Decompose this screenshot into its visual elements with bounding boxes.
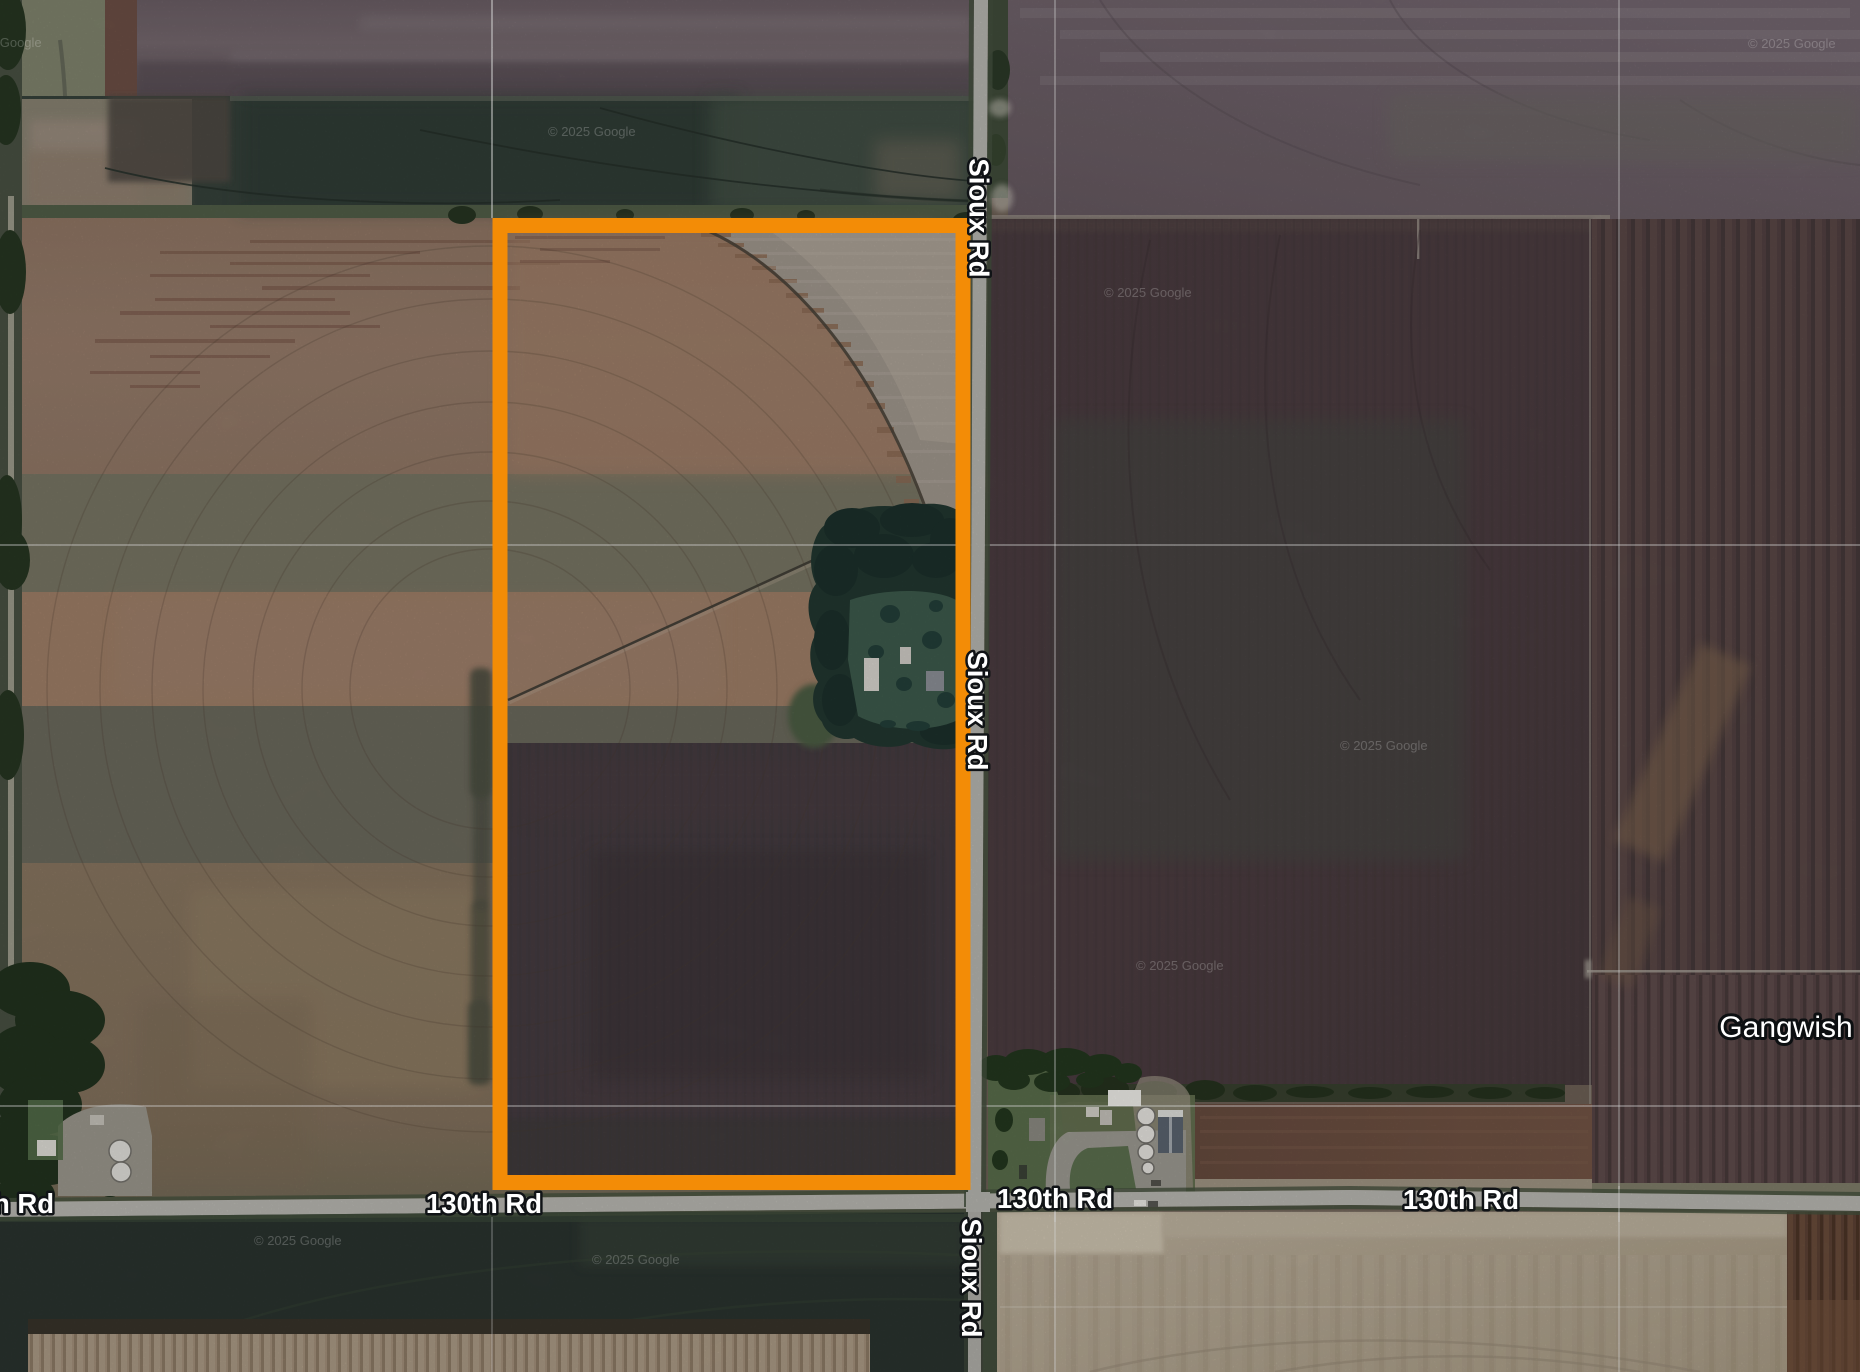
svg-text:Sioux Rd: Sioux Rd — [964, 158, 995, 277]
svg-text:© 2025 Google: © 2025 Google — [0, 35, 42, 50]
svg-text:Sioux Rd: Sioux Rd — [956, 1218, 987, 1337]
svg-text:© 2025 Google: © 2025 Google — [548, 124, 636, 139]
svg-text:130th Rd: 130th Rd — [1403, 1184, 1519, 1215]
svg-text:© 2025 Google: © 2025 Google — [1104, 285, 1192, 300]
svg-text:© 2025 Google: © 2025 Google — [1136, 958, 1224, 973]
svg-text:Sioux Rd: Sioux Rd — [962, 651, 993, 770]
svg-text:© 2025 Google: © 2025 Google — [1340, 738, 1428, 753]
svg-text:© 2025 Google: © 2025 Google — [592, 1252, 680, 1267]
svg-text:© 2025 Google: © 2025 Google — [1748, 36, 1836, 51]
svg-text:130th Rd: 130th Rd — [426, 1188, 542, 1219]
svg-text:© 2025 Google: © 2025 Google — [254, 1233, 342, 1248]
svg-text:130th Rd: 130th Rd — [0, 1188, 54, 1219]
svg-text:130th Rd: 130th Rd — [997, 1183, 1113, 1214]
svg-text:Gangwish: Gangwish — [1719, 1011, 1852, 1044]
